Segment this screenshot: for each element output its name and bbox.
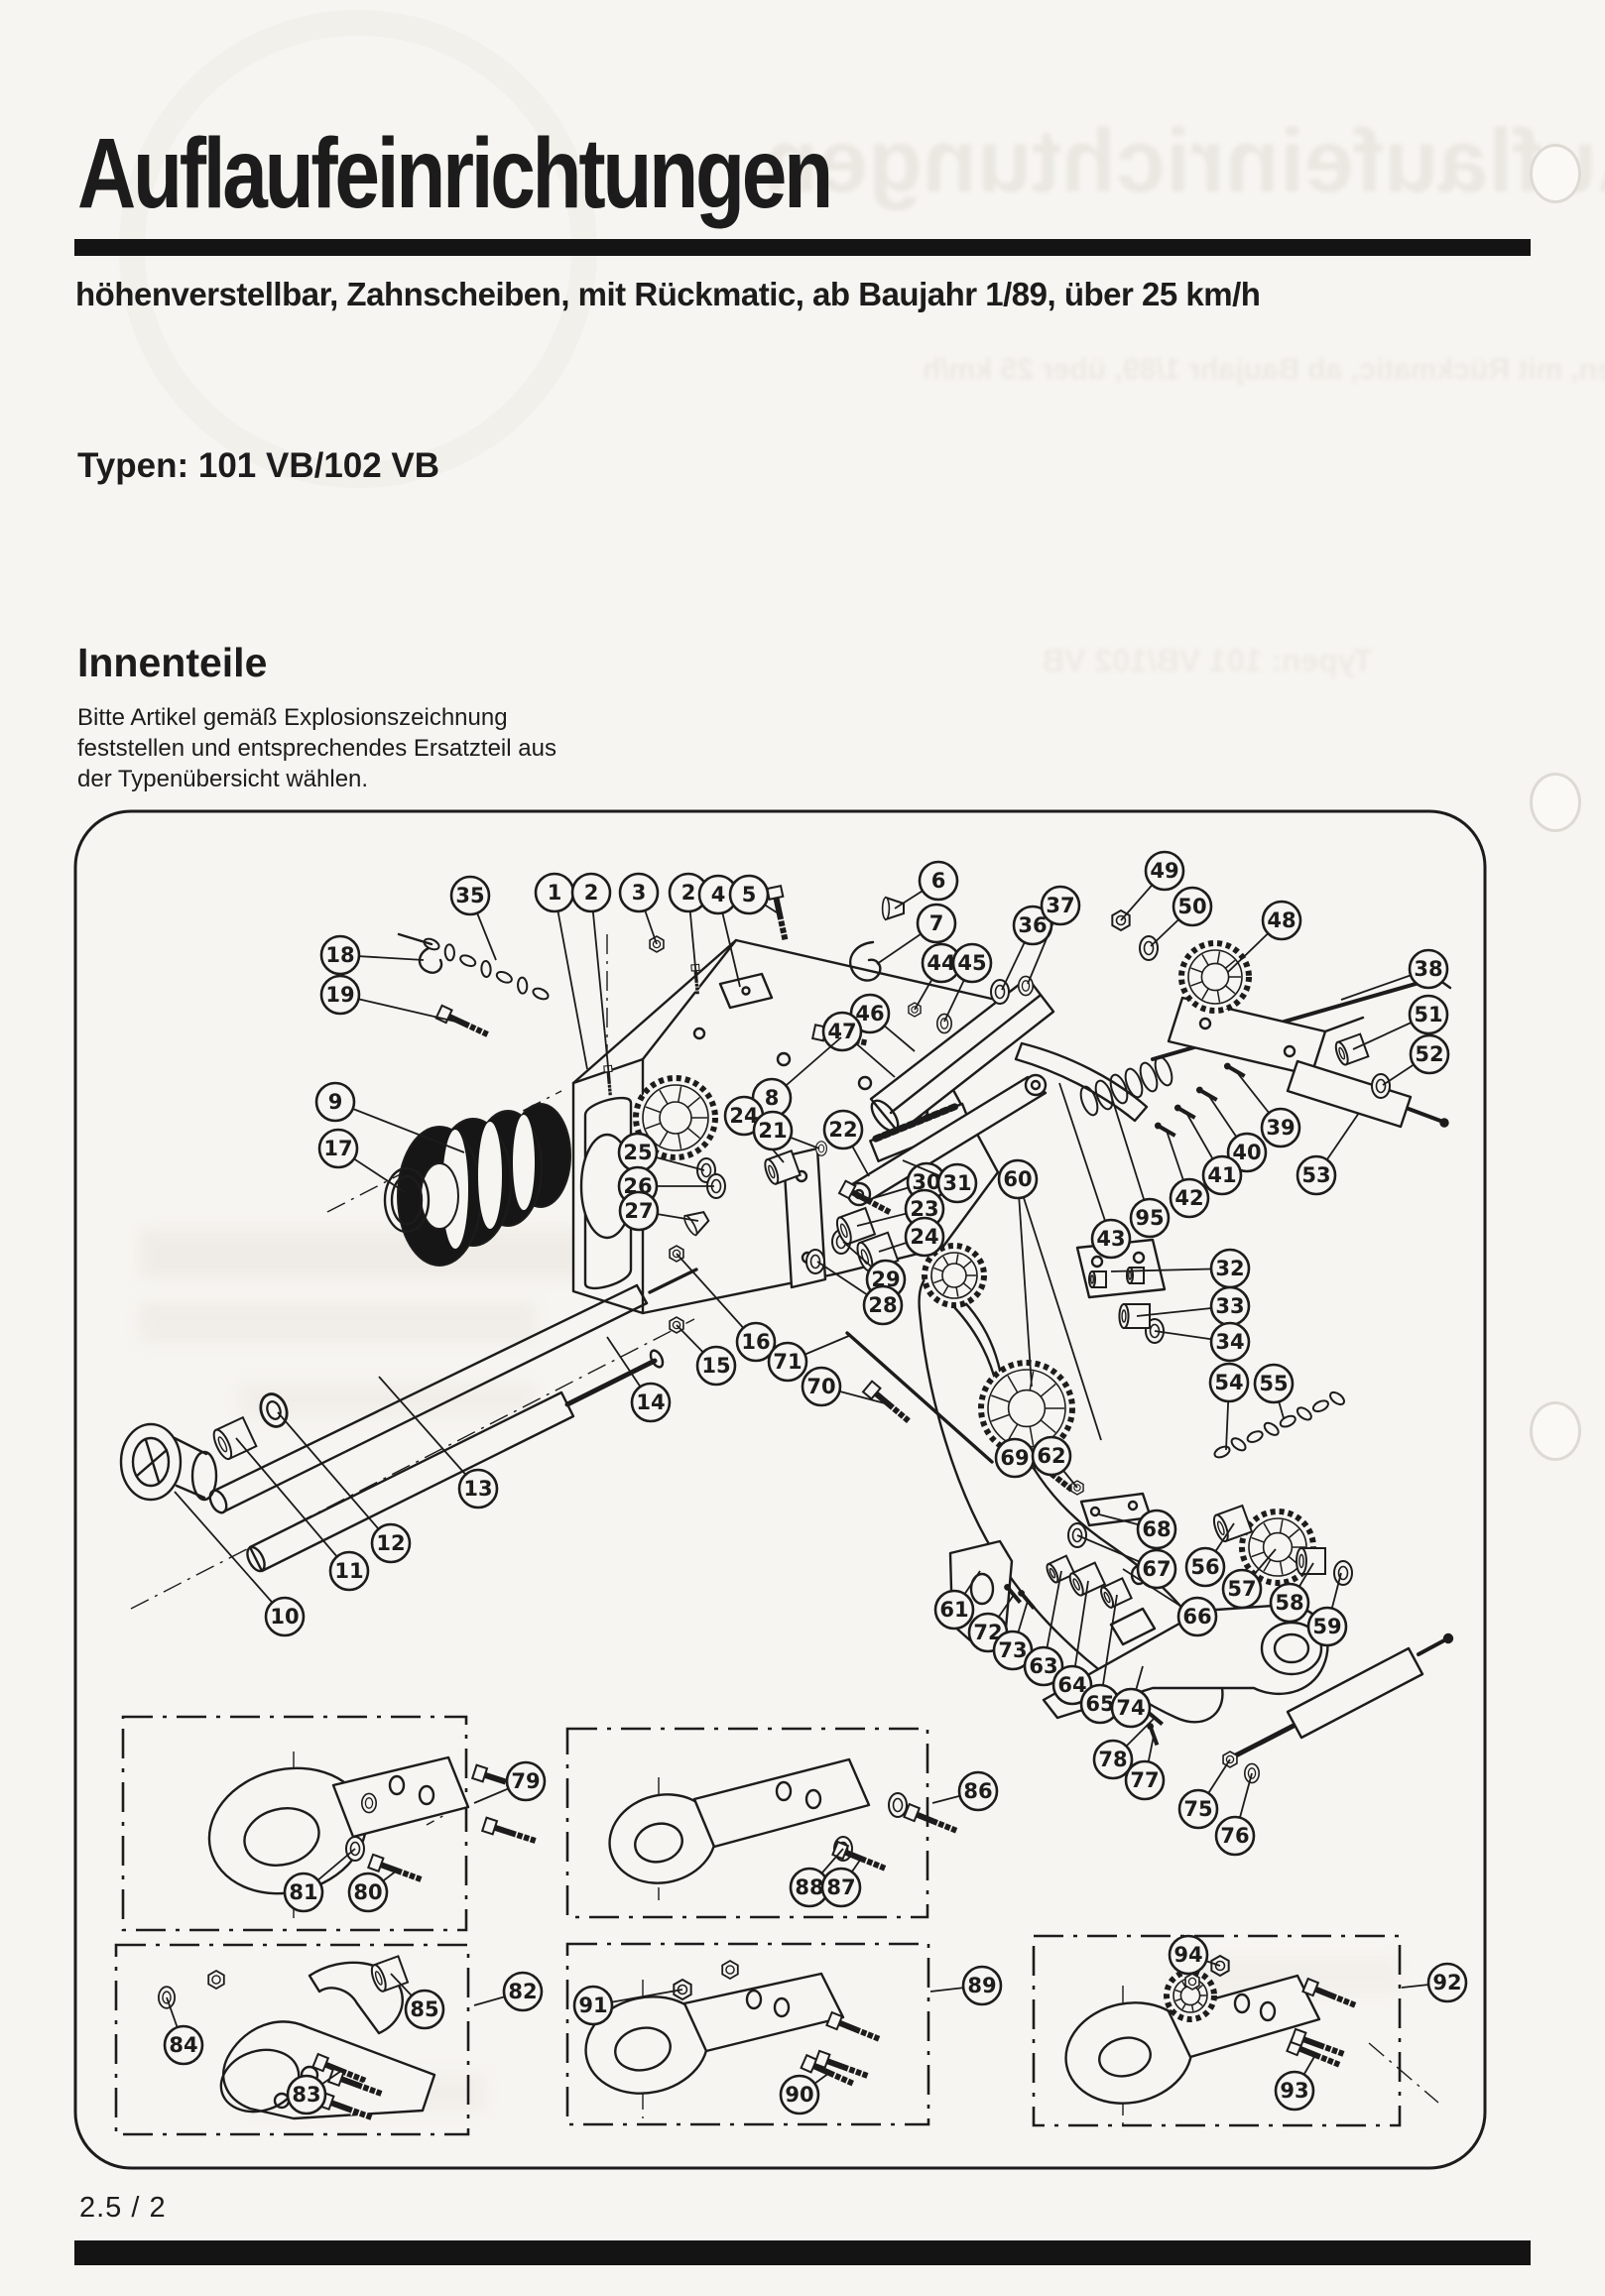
svg-text:74: 74 <box>1116 1696 1145 1720</box>
nut <box>722 1961 738 1979</box>
callout-6: 6 <box>895 862 957 908</box>
callout-10: 10 <box>175 1492 304 1635</box>
callout-38: 38 <box>1341 950 1447 1000</box>
toothed-disc <box>1181 943 1249 1011</box>
svg-text:65: 65 <box>1085 1692 1114 1716</box>
svg-text:92: 92 <box>1432 1971 1461 1994</box>
svg-text:63: 63 <box>1029 1654 1057 1678</box>
punch-hole <box>1530 1401 1581 1461</box>
callout-48: 48 <box>1228 902 1300 972</box>
svg-text:84: 84 <box>169 2033 197 2057</box>
callout-80: 80 <box>349 1871 397 1911</box>
svg-text:4: 4 <box>711 883 726 906</box>
callout-84: 84 <box>165 1997 202 2064</box>
callout-50: 50 <box>1151 888 1211 946</box>
end-cap-10 <box>121 1424 216 1500</box>
washer <box>889 1793 907 1817</box>
svg-text:36: 36 <box>1018 913 1047 937</box>
callout-89: 89 <box>930 1967 1001 2004</box>
washer <box>1140 936 1158 960</box>
svg-text:39: 39 <box>1266 1116 1295 1140</box>
svg-text:58: 58 <box>1275 1591 1303 1615</box>
svg-text:7: 7 <box>929 911 944 935</box>
callout-75: 75 <box>1179 1759 1230 1828</box>
washer <box>806 1250 824 1273</box>
callout-18: 18 <box>321 936 424 974</box>
svg-text:53: 53 <box>1301 1163 1330 1187</box>
svg-text:51: 51 <box>1414 1003 1442 1027</box>
svg-text:44: 44 <box>926 951 955 975</box>
svg-text:91: 91 <box>578 1994 607 2017</box>
callout-77: 77 <box>1126 1736 1164 1799</box>
svg-text:64: 64 <box>1057 1673 1086 1697</box>
pin <box>1195 1085 1219 1103</box>
pin <box>1173 1103 1197 1121</box>
svg-text:49: 49 <box>1150 859 1178 883</box>
callout-34: 34 <box>1155 1323 1249 1361</box>
chain <box>423 937 550 1002</box>
punch-hole <box>1530 144 1581 203</box>
callout-86: 86 <box>932 1772 997 1810</box>
svg-text:82: 82 <box>508 1980 537 2003</box>
callout-3: 3 <box>620 874 658 944</box>
cone-plug <box>883 898 904 919</box>
callout-53: 53 <box>1297 1113 1359 1194</box>
svg-text:21: 21 <box>758 1119 787 1143</box>
svg-text:12: 12 <box>376 1531 405 1555</box>
svg-text:50: 50 <box>1177 895 1206 918</box>
svg-text:38: 38 <box>1414 957 1442 981</box>
svg-text:47: 47 <box>827 1020 856 1043</box>
bushing <box>1089 1271 1106 1287</box>
svg-text:88: 88 <box>795 1875 823 1899</box>
svg-text:54: 54 <box>1214 1371 1243 1394</box>
svg-text:33: 33 <box>1215 1294 1244 1318</box>
svg-text:78: 78 <box>1098 1748 1127 1771</box>
nut <box>208 1971 224 1989</box>
svg-text:13: 13 <box>463 1477 492 1501</box>
svg-text:9: 9 <box>328 1090 343 1114</box>
callout-2: 2 <box>572 874 610 1077</box>
svg-text:18: 18 <box>325 943 354 967</box>
svg-text:57: 57 <box>1227 1577 1256 1601</box>
bolt <box>826 2012 881 2045</box>
svg-text:75: 75 <box>1183 1797 1212 1821</box>
svg-text:27: 27 <box>624 1199 653 1223</box>
svg-text:73: 73 <box>998 1638 1027 1662</box>
svg-text:94: 94 <box>1173 1943 1202 1967</box>
washer <box>991 980 1009 1004</box>
svg-text:90: 90 <box>785 2083 813 2107</box>
svg-text:52: 52 <box>1415 1042 1443 1066</box>
svg-text:2: 2 <box>584 881 599 905</box>
svg-text:32: 32 <box>1215 1257 1244 1280</box>
callout-15: 15 <box>677 1325 735 1385</box>
washer <box>1334 1561 1352 1585</box>
svg-text:77: 77 <box>1130 1768 1159 1792</box>
pin <box>1154 1121 1177 1139</box>
washer <box>1372 1074 1390 1098</box>
callout-92: 92 <box>1402 1964 1466 2001</box>
callout-55: 55 <box>1255 1365 1293 1418</box>
bolt <box>482 1818 538 1848</box>
callout-17: 17 <box>319 1130 405 1192</box>
bushing <box>1333 1034 1368 1066</box>
svg-text:11: 11 <box>334 1559 363 1583</box>
svg-text:59: 59 <box>1312 1615 1341 1638</box>
svg-text:10: 10 <box>270 1605 299 1629</box>
svg-text:68: 68 <box>1142 1517 1171 1541</box>
svg-text:3: 3 <box>632 881 647 905</box>
svg-text:28: 28 <box>868 1293 897 1317</box>
svg-text:61: 61 <box>939 1598 968 1622</box>
svg-text:80: 80 <box>353 1880 382 1904</box>
svg-text:25: 25 <box>623 1141 652 1164</box>
svg-text:17: 17 <box>323 1137 352 1160</box>
svg-text:95: 95 <box>1135 1206 1164 1230</box>
svg-text:69: 69 <box>1000 1446 1029 1470</box>
pin <box>1223 1061 1247 1079</box>
svg-text:85: 85 <box>410 1997 438 2021</box>
svg-text:45: 45 <box>957 951 986 975</box>
callout-35: 35 <box>451 877 496 960</box>
svg-text:24: 24 <box>910 1225 938 1249</box>
punch-hole <box>1530 773 1581 832</box>
svg-text:15: 15 <box>701 1354 730 1378</box>
callout-90: 90 <box>781 2073 829 2114</box>
svg-text:48: 48 <box>1267 908 1296 932</box>
bolt <box>904 1804 958 1837</box>
svg-text:86: 86 <box>963 1779 992 1803</box>
callout-54: 54 <box>1210 1364 1248 1450</box>
svg-text:87: 87 <box>826 1875 855 1899</box>
callout-52: 52 <box>1383 1035 1448 1085</box>
washer <box>256 1390 291 1430</box>
callout-76: 76 <box>1216 1773 1254 1855</box>
svg-text:83: 83 <box>292 2083 320 2107</box>
washer <box>937 1014 951 1032</box>
svg-text:66: 66 <box>1182 1605 1211 1629</box>
svg-text:42: 42 <box>1174 1186 1203 1210</box>
bellows <box>398 1104 570 1266</box>
svg-text:56: 56 <box>1190 1555 1219 1579</box>
svg-text:37: 37 <box>1046 894 1074 917</box>
svg-text:55: 55 <box>1259 1372 1288 1395</box>
svg-text:19: 19 <box>325 983 354 1007</box>
drawbar-eye-79 <box>195 1752 468 1909</box>
page-number: 2.5 / 2 <box>79 2192 167 2225</box>
exploded-diagram: 3518191232456744453637495048385152464739… <box>0 0 1605 2296</box>
svg-text:60: 60 <box>1003 1167 1032 1191</box>
bushing <box>1296 1548 1325 1574</box>
svg-text:41: 41 <box>1207 1163 1236 1187</box>
svg-text:6: 6 <box>931 869 946 893</box>
callout-93: 93 <box>1276 2055 1315 2110</box>
nut <box>1185 1974 1199 1990</box>
svg-text:79: 79 <box>511 1769 540 1793</box>
svg-text:1: 1 <box>548 881 562 905</box>
svg-text:62: 62 <box>1037 1444 1065 1468</box>
svg-text:2: 2 <box>681 881 696 905</box>
svg-text:43: 43 <box>1096 1227 1125 1251</box>
svg-text:70: 70 <box>806 1375 835 1398</box>
svg-text:34: 34 <box>1215 1330 1244 1354</box>
svg-text:40: 40 <box>1232 1141 1261 1164</box>
footer-rule <box>74 2240 1531 2265</box>
svg-text:16: 16 <box>741 1330 770 1354</box>
svg-text:14: 14 <box>636 1390 665 1414</box>
washer <box>1019 976 1033 995</box>
svg-text:89: 89 <box>967 1974 996 1997</box>
svg-text:76: 76 <box>1220 1824 1249 1848</box>
svg-text:8: 8 <box>765 1086 780 1110</box>
svg-text:31: 31 <box>942 1171 971 1195</box>
catalog-page: Auflaufeinrichtungen höhenverstellbar, Z… <box>0 0 1605 2296</box>
svg-text:35: 35 <box>455 884 484 907</box>
svg-text:67: 67 <box>1142 1557 1171 1581</box>
svg-text:22: 22 <box>828 1118 857 1142</box>
washer <box>362 1793 376 1812</box>
callout-42: 42 <box>1167 1131 1208 1217</box>
svg-text:5: 5 <box>742 883 757 906</box>
callout-82: 82 <box>474 1973 542 2010</box>
svg-text:81: 81 <box>289 1880 317 1904</box>
svg-text:93: 93 <box>1280 2079 1308 2103</box>
svg-text:71: 71 <box>773 1350 802 1374</box>
